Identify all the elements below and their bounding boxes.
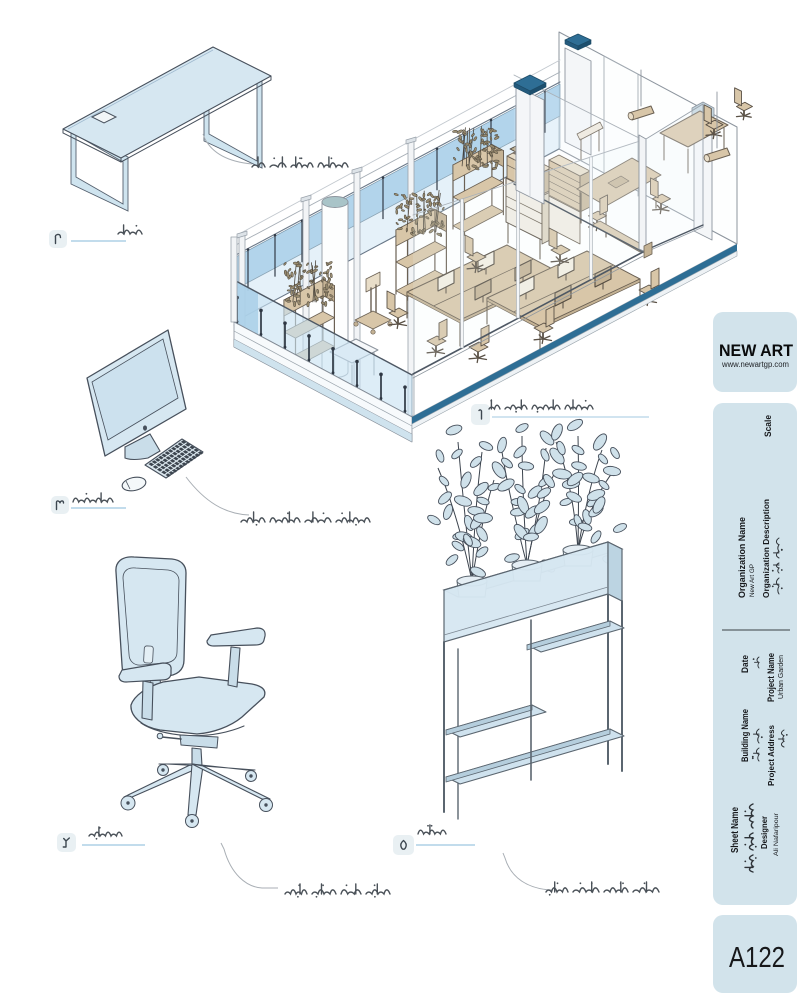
- svg-text:Designer: Designer: [759, 815, 769, 849]
- svg-text:New Art GP: New Art GP: [749, 564, 756, 597]
- svg-text:Project Name: Project Name: [766, 653, 776, 702]
- svg-text:Organization Description: Organization Description: [761, 499, 771, 598]
- svg-text:Building Name: Building Name: [740, 709, 750, 762]
- svg-text:NEW ART: NEW ART: [719, 341, 794, 360]
- svg-text:Date: Date: [740, 655, 751, 673]
- svg-text:www.newartgp.com: www.newartgp.com: [721, 360, 789, 369]
- svg-text:Organization Name: Organization Name: [737, 517, 748, 598]
- svg-text:Ali Nafaripour: Ali Nafaripour: [773, 812, 780, 856]
- svg-text:A122: A122: [729, 942, 785, 974]
- svg-text:Urban Garden: Urban Garden: [776, 655, 785, 699]
- svg-text:Scale: Scale: [763, 415, 774, 437]
- svg-text:Project Address: Project Address: [766, 725, 776, 786]
- svg-text:Sheet Name: Sheet Name: [730, 807, 741, 853]
